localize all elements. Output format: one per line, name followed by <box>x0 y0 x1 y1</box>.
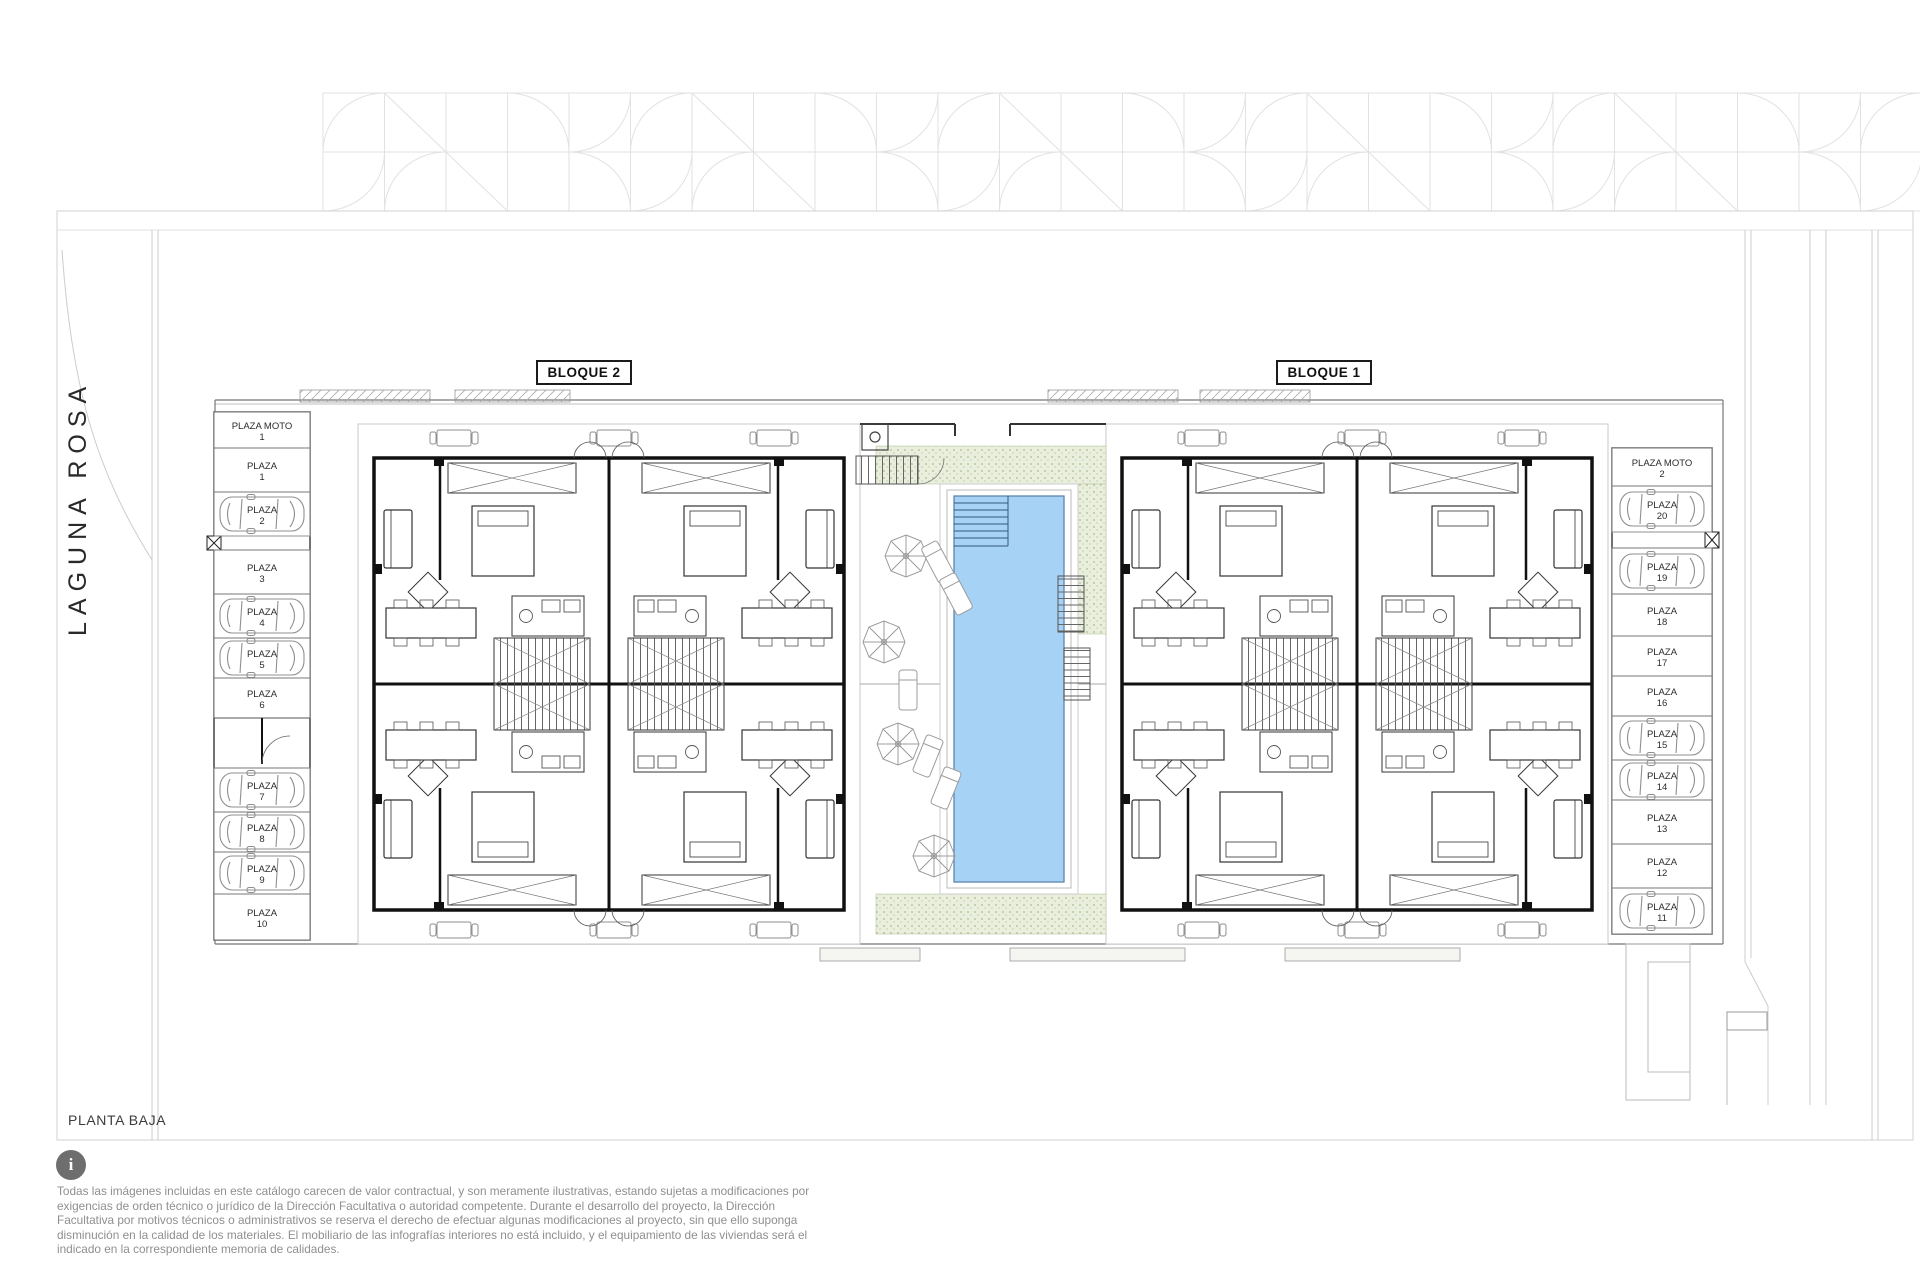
parking-cell-number: 3 <box>259 574 264 585</box>
parking-cell: PLAZA1 <box>214 448 310 492</box>
parking-cell-name: PLAZA <box>247 689 278 700</box>
parking-cell-name: PLAZA <box>247 607 278 618</box>
site-plan-drawing: PLAZA MOTO1PLAZA1PLAZA2PLAZA3PLAZA4PLAZA… <box>0 0 1920 1280</box>
courtyard-stairs <box>856 456 918 484</box>
parking-column-left: PLAZA MOTO1PLAZA1PLAZA2PLAZA3PLAZA4PLAZA… <box>207 412 310 940</box>
parking-cell-name: PLAZA <box>1647 562 1678 573</box>
parking-cell-name: PLAZA <box>247 781 278 792</box>
parking-cell: PLAZA11 <box>1612 888 1712 934</box>
parking-cell: PLAZA4 <box>214 594 310 638</box>
parking-cell-number: 16 <box>1657 698 1668 709</box>
parking-cell: PLAZA16 <box>1612 676 1712 716</box>
bloque-2-label: BLOQUE 2 <box>536 360 632 385</box>
parking-cell-number: 4 <box>259 618 264 629</box>
parking-cell-name: PLAZA <box>247 823 278 834</box>
parking-cell-number: 2 <box>259 516 264 527</box>
plan-title: PLANTA BAJA <box>68 1112 166 1128</box>
floor-plan-page: PLAZA MOTO1PLAZA1PLAZA2PLAZA3PLAZA4PLAZA… <box>0 0 1920 1280</box>
parking-cell-name: PLAZA <box>1647 902 1678 913</box>
parking-cell: PLAZA6 <box>214 678 310 718</box>
parking-cell: PLAZA5 <box>214 638 310 678</box>
parking-cell-number: 9 <box>259 875 264 886</box>
parking-cell-name: PLAZA <box>247 461 278 472</box>
parking-cell: PLAZA18 <box>1612 594 1712 636</box>
parking-cell-name: PLAZA <box>247 649 278 660</box>
parking-cell-number: 7 <box>259 792 264 803</box>
parking-cell-number: 1 <box>259 432 264 443</box>
parking-cell-name: PLAZA <box>1647 647 1678 658</box>
parking-cell: PLAZA14 <box>1612 760 1712 800</box>
driveway-lines <box>1626 944 1767 1105</box>
wall-marker <box>1705 532 1719 548</box>
parking-cell-number: 19 <box>1657 573 1668 584</box>
parking-cell: PLAZA10 <box>214 894 310 940</box>
pool <box>940 484 1078 894</box>
street-name-label: LAGUNA ROSA <box>64 380 93 636</box>
parking-cell-name: PLAZA MOTO <box>1632 458 1693 469</box>
decorative-tile-pattern <box>323 93 1920 211</box>
parking-cell-name: PLAZA <box>247 864 278 875</box>
parking-cell: PLAZA17 <box>1612 636 1712 676</box>
parking-cell-number: 12 <box>1657 868 1668 879</box>
side-stairs-upper <box>1058 576 1084 632</box>
parking-cell: PLAZA MOTO1 <box>214 412 310 448</box>
parking-cell-name: PLAZA <box>1647 500 1678 511</box>
info-icon: i <box>56 1150 86 1180</box>
pool-courtyard <box>856 424 1106 934</box>
parking-cell-name: PLAZA <box>247 505 278 516</box>
bloque-1-label: BLOQUE 1 <box>1276 360 1372 385</box>
parking-cell: PLAZA15 <box>1612 716 1712 760</box>
wall-marker <box>207 536 221 550</box>
parking-cell-number: 13 <box>1657 824 1668 835</box>
parking-cell-number: 15 <box>1657 740 1668 751</box>
parking-cell-name: PLAZA <box>1647 687 1678 698</box>
parking-cell: PLAZA7 <box>214 768 310 812</box>
parking-cell: PLAZA2 <box>214 492 310 536</box>
parking-cell-number: 18 <box>1657 617 1668 628</box>
parking-cell: PLAZA13 <box>1612 800 1712 844</box>
parking-cell-number: 10 <box>257 919 268 930</box>
parking-cell-name: PLAZA <box>1647 857 1678 868</box>
parking-cell: PLAZA20 <box>1612 486 1712 532</box>
parking-cell: PLAZA3 <box>214 550 310 594</box>
parking-cell-number: 20 <box>1657 511 1668 522</box>
parking-cell-number: 1 <box>259 472 264 483</box>
parking-cell-number: 6 <box>259 700 264 711</box>
parking-cell-number: 2 <box>1659 469 1664 480</box>
parking-cell-number: 8 <box>259 834 264 845</box>
parking-cell-name: PLAZA <box>1647 771 1678 782</box>
parking-cell-name: PLAZA <box>1647 606 1678 617</box>
parking-cell: PLAZA19 <box>1612 548 1712 594</box>
parking-cell-name: PLAZA MOTO <box>232 421 293 432</box>
parking-cell: PLAZA9 <box>214 852 310 894</box>
parking-cell-name: PLAZA <box>247 908 278 919</box>
parking-cell-number: 5 <box>259 660 264 671</box>
parking-cell-number: 17 <box>1657 658 1668 669</box>
parking-cell: PLAZA12 <box>1612 844 1712 888</box>
building-bloque-1 <box>1106 424 1608 944</box>
parking-cell-name: PLAZA <box>1647 813 1678 824</box>
parking-cell-name: PLAZA <box>247 563 278 574</box>
parking-cell-name: PLAZA <box>1647 729 1678 740</box>
building-bloque-2 <box>358 424 860 944</box>
parking-cell-number: 14 <box>1657 782 1668 793</box>
side-stairs-lower <box>1064 648 1090 700</box>
parking-column-right: PLAZA MOTO2PLAZA20PLAZA19PLAZA18PLAZA17P… <box>1612 448 1719 934</box>
disclaimer-text: Todas las imágenes incluidas en este cat… <box>57 1184 815 1257</box>
parking-cell: PLAZA8 <box>214 812 310 852</box>
parking-cell-number: 11 <box>1657 913 1667 924</box>
parking-cell: PLAZA MOTO2 <box>1612 448 1712 486</box>
